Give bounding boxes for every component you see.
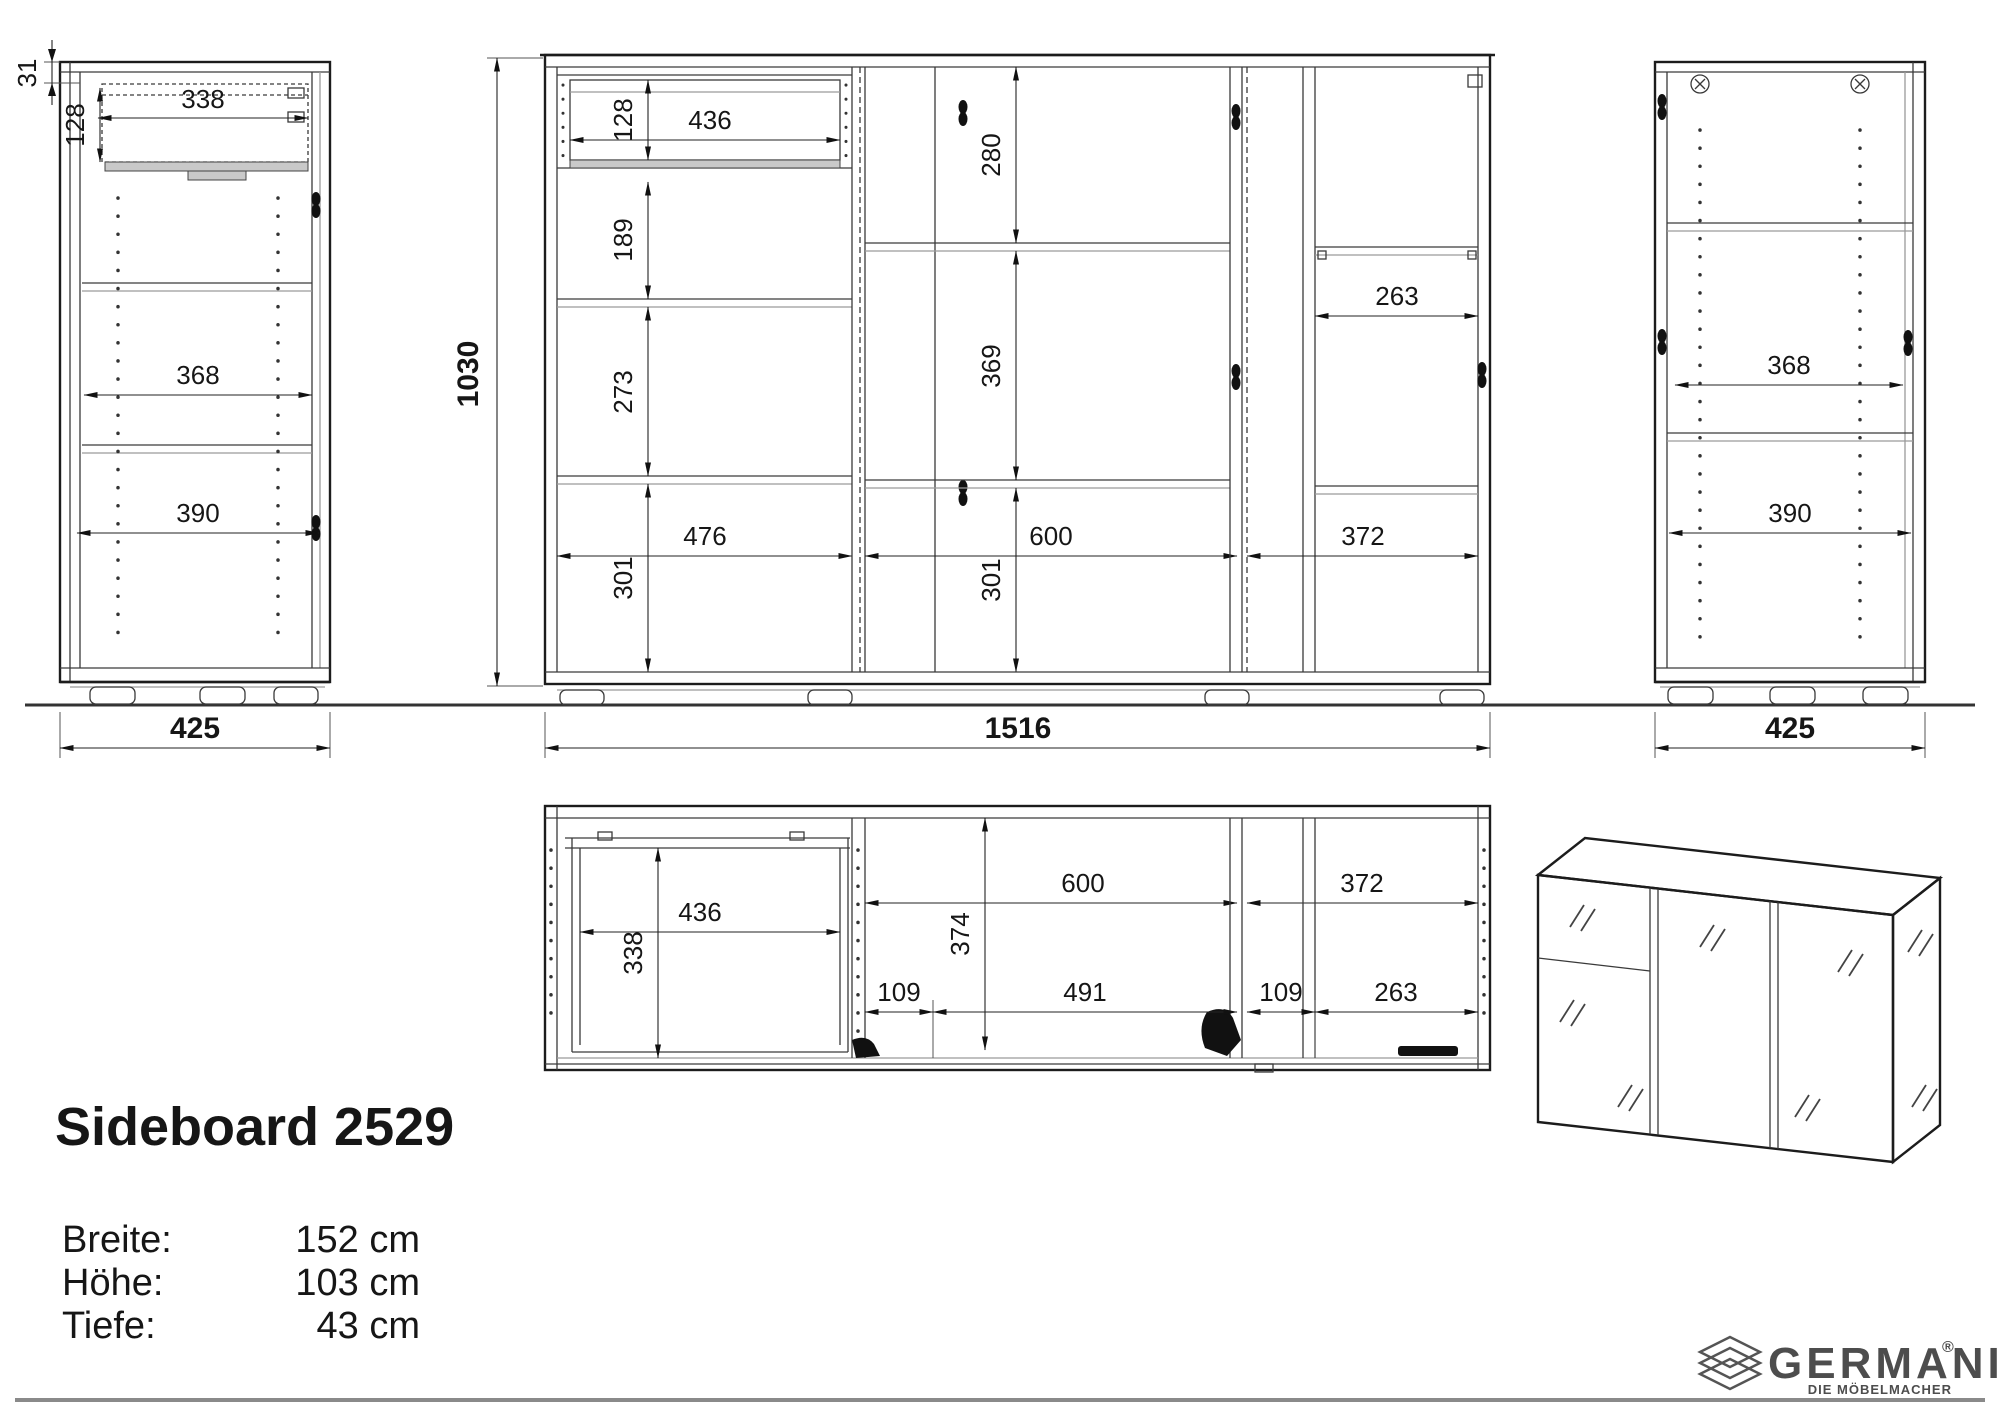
dim-128-front: 128 <box>608 98 638 141</box>
dim-128: 128 <box>60 103 90 146</box>
spec-breite-label: Breite: <box>62 1219 172 1261</box>
dim-600-top: 600 <box>1061 868 1104 898</box>
right-side-view: 368 390 425 <box>1655 62 1925 758</box>
dim-1030: 1030 <box>452 341 485 408</box>
iso-3d-view <box>1538 838 1940 1162</box>
dim-263-front: 263 <box>1375 281 1418 311</box>
dim-301-mid: 301 <box>976 558 1006 601</box>
registered-mark: ® <box>1942 1339 1954 1356</box>
dim-425-left: 425 <box>170 712 220 745</box>
dim-368-right: 368 <box>1767 350 1810 380</box>
dim-390-right: 390 <box>1768 498 1811 528</box>
dim-390: 390 <box>176 498 219 528</box>
dim-476: 476 <box>683 521 726 551</box>
dim-273: 273 <box>608 370 638 413</box>
dim-338: 338 <box>181 84 224 114</box>
dim-369: 369 <box>976 344 1006 387</box>
dim-109-right: 109 <box>1259 977 1302 1007</box>
top-view: 436 338 374 600 372 109 491 109 2 <box>545 806 1490 1072</box>
dim-436-top: 436 <box>678 897 721 927</box>
left-side-view: 31 128 338 368 390 <box>12 40 330 758</box>
dim-600-front: 600 <box>1029 521 1072 551</box>
dim-425-right: 425 <box>1765 712 1815 745</box>
spec-tiefe-value: 43 cm <box>317 1305 420 1347</box>
brand-name: GERMANIA <box>1768 1339 2000 1388</box>
spec-hoehe-value: 103 cm <box>295 1262 420 1304</box>
dim-1516: 1516 <box>985 712 1052 745</box>
dim-372-top: 372 <box>1340 868 1383 898</box>
dim-31: 31 <box>12 59 42 88</box>
dim-368: 368 <box>176 360 219 390</box>
dim-301-left: 301 <box>608 556 638 599</box>
front-view: 1030 128 436 189 273 301 476 <box>452 55 1495 758</box>
dim-338-top: 338 <box>618 931 648 974</box>
spec-breite-value: 152 cm <box>295 1219 420 1261</box>
dim-189: 189 <box>608 218 638 261</box>
dim-109-left: 109 <box>877 977 920 1007</box>
spec-tiefe-label: Tiefe: <box>62 1305 156 1347</box>
brand-tagline: DIE MÖBELMACHER <box>1808 1382 1952 1397</box>
dim-372-front: 372 <box>1341 521 1384 551</box>
spec-hoehe-label: Höhe: <box>62 1262 163 1304</box>
brand-logo: GERMANIA ® DIE MÖBELMACHER <box>15 1337 2000 1400</box>
dim-491: 491 <box>1063 977 1106 1007</box>
dim-436-front: 436 <box>688 105 731 135</box>
drawing-page: 31 128 338 368 390 <box>0 0 2000 1413</box>
layers-icon <box>1700 1337 1760 1389</box>
dim-374: 374 <box>945 912 975 955</box>
dim-280: 280 <box>976 133 1006 176</box>
title-block: Sideboard 2529 Breite: 152 cm Höhe: 103 … <box>55 1097 454 1347</box>
technical-drawing: 31 128 338 368 390 <box>0 0 2000 1413</box>
dim-263-top: 263 <box>1374 977 1417 1007</box>
page-title: Sideboard 2529 <box>55 1097 454 1157</box>
